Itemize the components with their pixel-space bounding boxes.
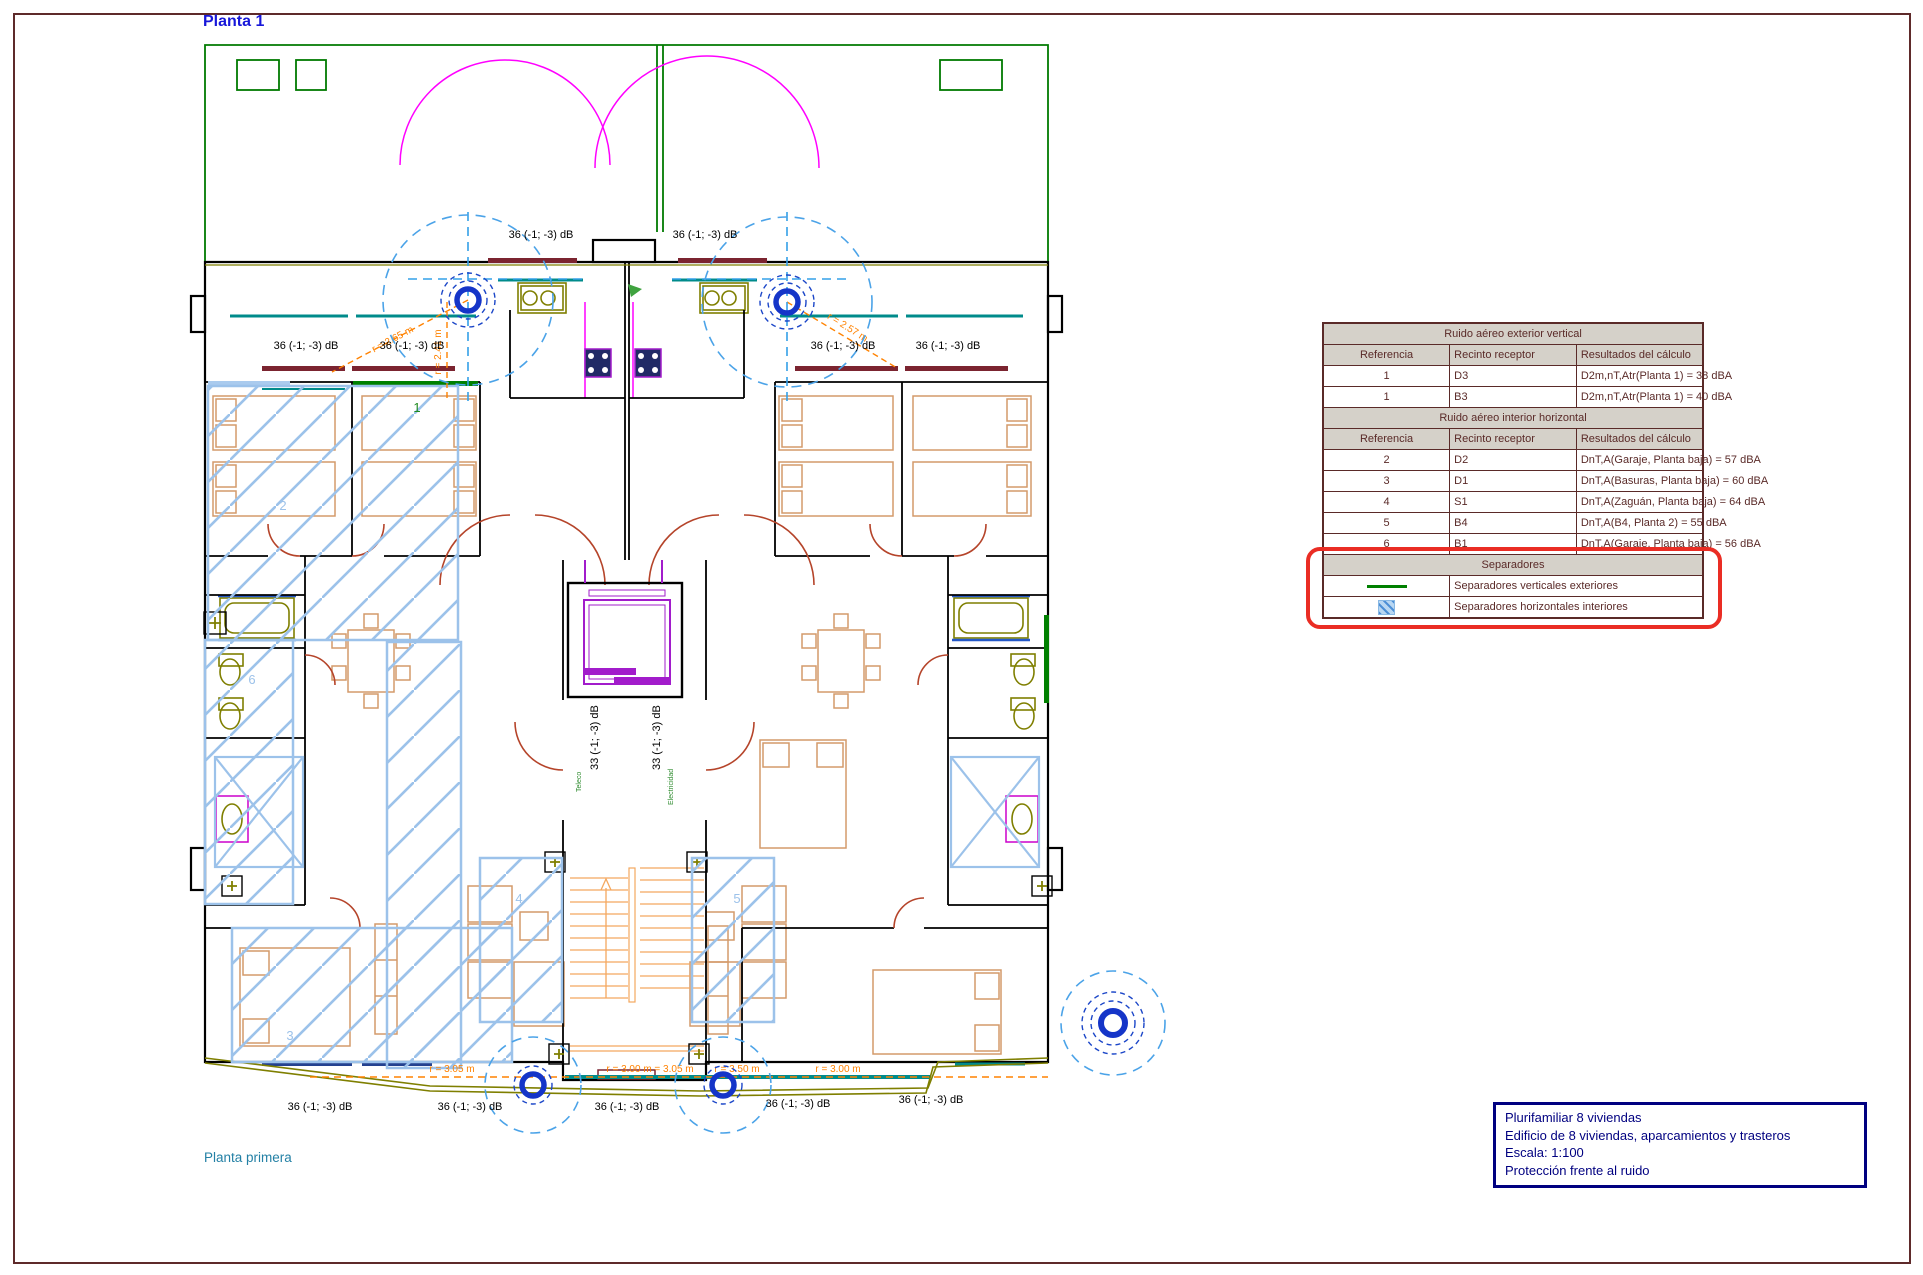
db-label: 36 (-1; -3) dB <box>673 229 738 241</box>
column-header: Referencia <box>1323 429 1450 450</box>
table-cell: 1 <box>1323 366 1450 387</box>
scale-label: Escala: 1:100 <box>1505 1144 1855 1162</box>
table-header-row: Referencia Recinto receptor Resultados d… <box>1323 429 1703 450</box>
dim-label: r = 2.41 m <box>433 329 444 374</box>
section-title-row: Ruido aéreo interior horizontal <box>1323 408 1703 429</box>
noise-source-icon <box>1061 971 1165 1075</box>
document-type: Protección frente al ruido <box>1505 1162 1855 1180</box>
table-header-row: Referencia Recinto receptor Resultados d… <box>1323 345 1703 366</box>
north-arrow-icon <box>628 284 642 297</box>
section-title: Ruido aéreo exterior vertical <box>1323 323 1703 345</box>
table-row: 1 D3 D2m,nT,Atr(Planta 1) = 38 dBA <box>1323 366 1703 387</box>
project-description: Edificio de 8 viviendas, aparcamientos y… <box>1505 1127 1855 1145</box>
section-title: Ruido aéreo interior horizontal <box>1323 408 1703 429</box>
table-cell: 1 <box>1323 387 1450 408</box>
dim-label: r = 3.00 m = 3.05 m <box>606 1064 693 1075</box>
stairs <box>570 868 704 1051</box>
table-cell: D2m,nT,Atr(Planta 1) = 38 dBA <box>1576 366 1703 387</box>
db-label: 36 (-1; -3) dB <box>380 340 445 352</box>
floor-plan: r = 2.65 m r = 2.41 m r = 2.57 m r = 3.0… <box>0 0 1923 1275</box>
horizontal-separator-hatches <box>205 386 1039 1068</box>
title-block: Plurifamiliar 8 viviendas Edificio de 8 … <box>1493 1102 1867 1188</box>
column-header: Recinto receptor <box>1450 345 1577 366</box>
elevator <box>568 560 682 697</box>
table-row: 1 B3 D2m,nT,Atr(Planta 1) = 40 dBA <box>1323 387 1703 408</box>
table-cell: B3 <box>1450 387 1577 408</box>
table-cell: D2 <box>1450 450 1577 471</box>
column-header: Resultados del cálculo <box>1576 429 1703 450</box>
room-ref: 5 <box>733 891 740 906</box>
shaft-label: Electricidad <box>668 769 675 805</box>
db-label: 36 (-1; -3) dB <box>438 1101 503 1113</box>
db-label: 36 (-1; -3) dB <box>899 1094 964 1106</box>
db-label: 36 (-1; -3) dB <box>288 1101 353 1113</box>
db-label: 36 (-1; -3) dB <box>811 340 876 352</box>
section-title-row: Ruido aéreo exterior vertical <box>1323 323 1703 345</box>
column-header: Recinto receptor <box>1450 429 1577 450</box>
dim-label: r = 3.00 m <box>815 1064 860 1075</box>
shaft-labels: Teleco Electricidad <box>576 769 675 805</box>
table-row: 4 S1 DnT,A(Zaguán, Planta baja) = 64 dBA <box>1323 492 1703 513</box>
db-label: 36 (-1; -3) dB <box>509 229 574 241</box>
room-ref: 2 <box>279 498 286 513</box>
table-cell: D3 <box>1450 366 1577 387</box>
db-label-vertical: 33 (-1; -3) dB <box>651 705 663 770</box>
table-cell: 4 <box>1323 492 1450 513</box>
shaft-label: Teleco <box>576 772 583 792</box>
db-label-vertical: 33 (-1; -3) dB <box>589 705 601 770</box>
terrace-outline <box>205 45 1048 262</box>
table-cell: DnT,A(Basuras, Planta baja) = 60 dBA <box>1576 471 1703 492</box>
table-row: 3 D1 DnT,A(Basuras, Planta baja) = 60 dB… <box>1323 471 1703 492</box>
table-cell: DnT,A(Garaje, Planta baja) = 57 dBA <box>1576 450 1703 471</box>
separadores-highlight <box>1306 547 1722 629</box>
room-ref: 6 <box>248 672 255 687</box>
db-label: 36 (-1; -3) dB <box>766 1098 831 1110</box>
table-cell: D2m,nT,Atr(Planta 1) = 40 dBA <box>1576 387 1703 408</box>
table-row: 5 B4 DnT,A(B4, Planta 2) = 55 dBA <box>1323 513 1703 534</box>
table-row: 2 D2 DnT,A(Garaje, Planta baja) = 57 dBA <box>1323 450 1703 471</box>
room-ref: 1 <box>413 400 420 415</box>
noise-source-icon <box>675 1037 771 1133</box>
table-cell: DnT,A(Zaguán, Planta baja) = 64 dBA <box>1576 492 1703 513</box>
terrace-door-arcs <box>400 56 819 398</box>
table-cell: D1 <box>1450 471 1577 492</box>
noise-source-icon <box>485 1037 581 1133</box>
table-cell: 5 <box>1323 513 1450 534</box>
table-cell: 3 <box>1323 471 1450 492</box>
room-ref: 4 <box>515 891 522 906</box>
plan-caption: Planta primera <box>204 1150 292 1165</box>
project-name: Plurifamiliar 8 viviendas <box>1505 1109 1855 1127</box>
room-ref: 3 <box>286 1028 293 1043</box>
dim-label: r = 3.05 m <box>429 1064 474 1075</box>
db-label: 36 (-1; -3) dB <box>916 340 981 352</box>
column-header: Referencia <box>1323 345 1450 366</box>
db-label: 36 (-1; -3) dB <box>595 1101 660 1113</box>
column-header: Resultados del cálculo <box>1576 345 1703 366</box>
table-cell: 2 <box>1323 450 1450 471</box>
table-cell: DnT,A(B4, Planta 2) = 55 dBA <box>1576 513 1703 534</box>
db-label: 36 (-1; -3) dB <box>274 340 339 352</box>
table-cell: B4 <box>1450 513 1577 534</box>
table-cell: S1 <box>1450 492 1577 513</box>
